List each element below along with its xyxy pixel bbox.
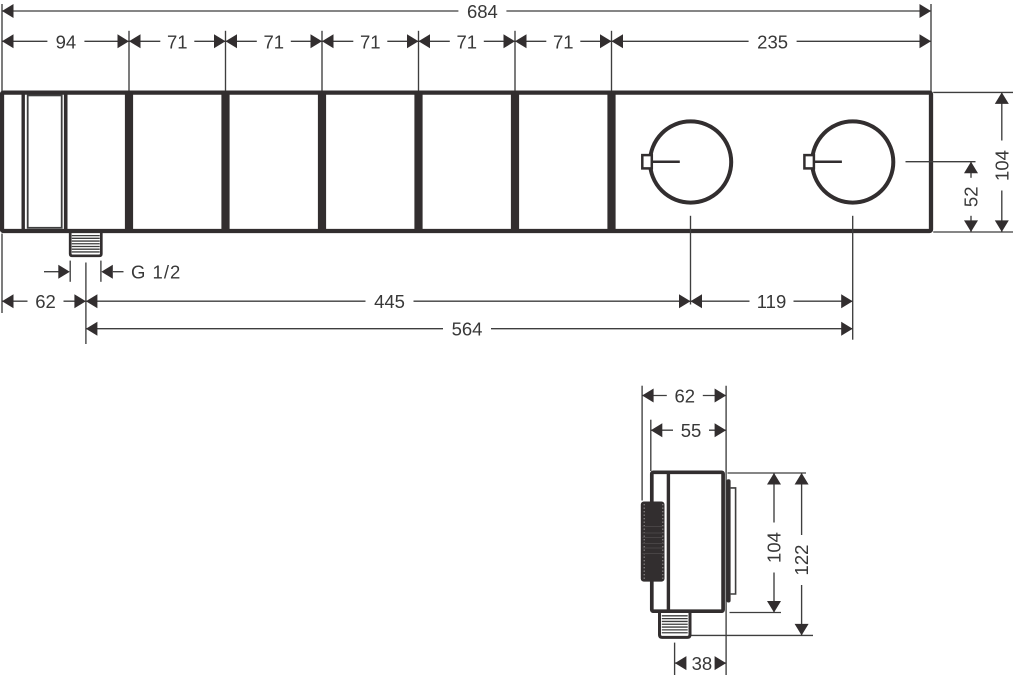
svg-text:71: 71 (553, 31, 574, 52)
svg-text:71: 71 (264, 31, 285, 52)
svg-text:55: 55 (681, 420, 702, 441)
svg-text:104: 104 (764, 532, 785, 563)
svg-text:G 1/2: G 1/2 (131, 262, 181, 283)
svg-text:119: 119 (757, 291, 787, 312)
svg-text:62: 62 (35, 291, 56, 312)
svg-text:564: 564 (452, 319, 483, 340)
svg-text:52: 52 (961, 187, 982, 208)
svg-text:71: 71 (360, 31, 381, 52)
svg-text:38: 38 (692, 653, 713, 674)
svg-text:62: 62 (675, 386, 696, 407)
svg-text:71: 71 (167, 31, 188, 52)
svg-text:94: 94 (56, 31, 77, 52)
svg-text:235: 235 (757, 31, 788, 52)
svg-text:104: 104 (991, 150, 1012, 181)
svg-text:445: 445 (374, 291, 405, 312)
svg-text:684: 684 (467, 1, 498, 22)
svg-text:122: 122 (791, 545, 812, 576)
svg-text:71: 71 (457, 31, 478, 52)
